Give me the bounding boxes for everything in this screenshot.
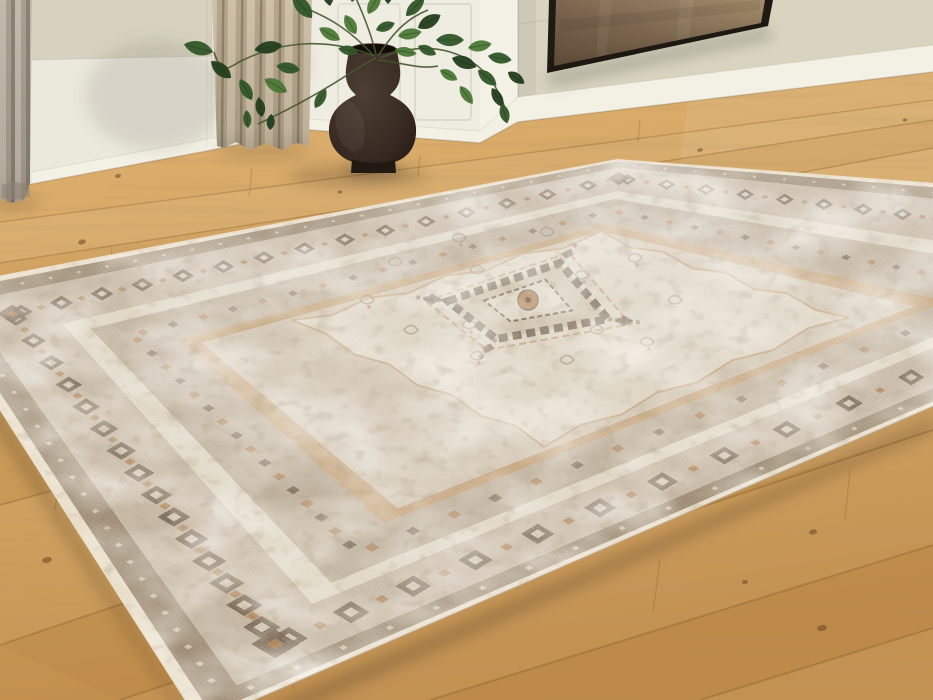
curtain-left [0, 0, 32, 203]
curtain-left-shade [0, 0, 32, 203]
plant-wall-shadow [85, 40, 225, 150]
product-photo [0, 0, 933, 700]
curtain-left-puddle [2, 182, 30, 199]
room-scene [0, 0, 933, 700]
